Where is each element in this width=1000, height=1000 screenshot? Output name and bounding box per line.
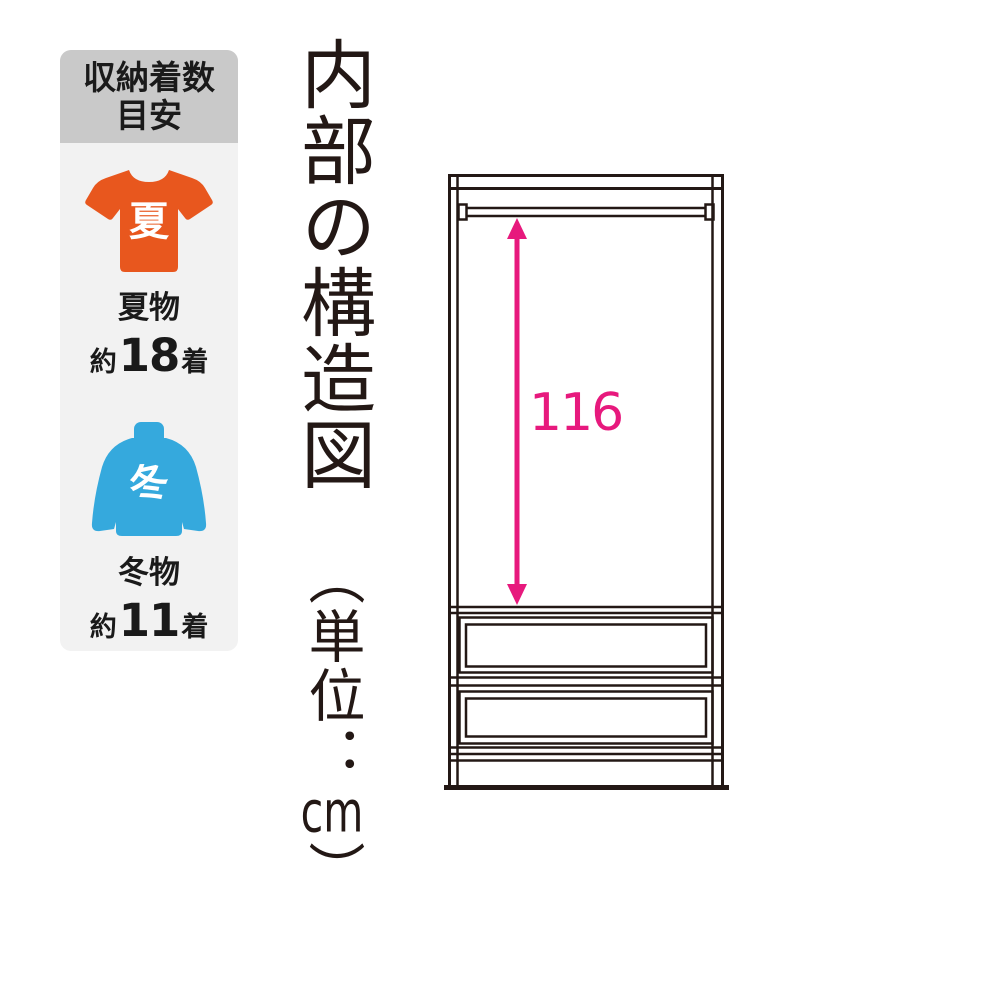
page-title-unit-prefix: （単位： (299, 548, 365, 784)
winter-count: 約 11 着 (90, 594, 209, 647)
summer-label: 夏物 (118, 282, 180, 327)
page-title-unit-value: cm (299, 784, 365, 841)
wardrobe-outline (444, 174, 729, 789)
drawer-top (460, 618, 713, 673)
capacity-guide-panel: 収納着数 目安 夏 夏物 約 18 着 冬 冬物 約 11 着 (60, 50, 238, 651)
page-title-main: 内部の構造図 (288, 36, 376, 492)
capacity-header-line2: 目安 (116, 97, 182, 134)
summer-count-number: 18 (119, 329, 180, 382)
summer-count: 約 18 着 (90, 329, 209, 382)
dimension-arrow (507, 218, 527, 605)
summer-shirt-icon: 夏 (84, 169, 214, 273)
summer-count-unit: 着 (181, 340, 208, 379)
winter-sweater-icon: 冬 (83, 422, 215, 538)
summer-badge-label: 夏 (129, 199, 170, 245)
winter-count-unit: 着 (181, 605, 208, 644)
page-title: 内部の構造図（単位：cm） (290, 36, 374, 900)
drawer-bottom (460, 692, 713, 744)
page-title-unit-suffix: ） (299, 841, 365, 900)
wardrobe-structure-diagram: 116 (440, 165, 740, 805)
summer-count-approx: 約 (90, 340, 117, 379)
dimension-value: 116 (529, 383, 622, 443)
winter-count-number: 11 (119, 594, 180, 647)
winter-count-approx: 約 (90, 605, 117, 644)
capacity-header-line1: 収納着数 (83, 59, 215, 96)
winter-label: 冬物 (118, 547, 180, 592)
capacity-guide-header: 収納着数 目安 (60, 50, 238, 143)
hanger-rod (459, 205, 714, 220)
